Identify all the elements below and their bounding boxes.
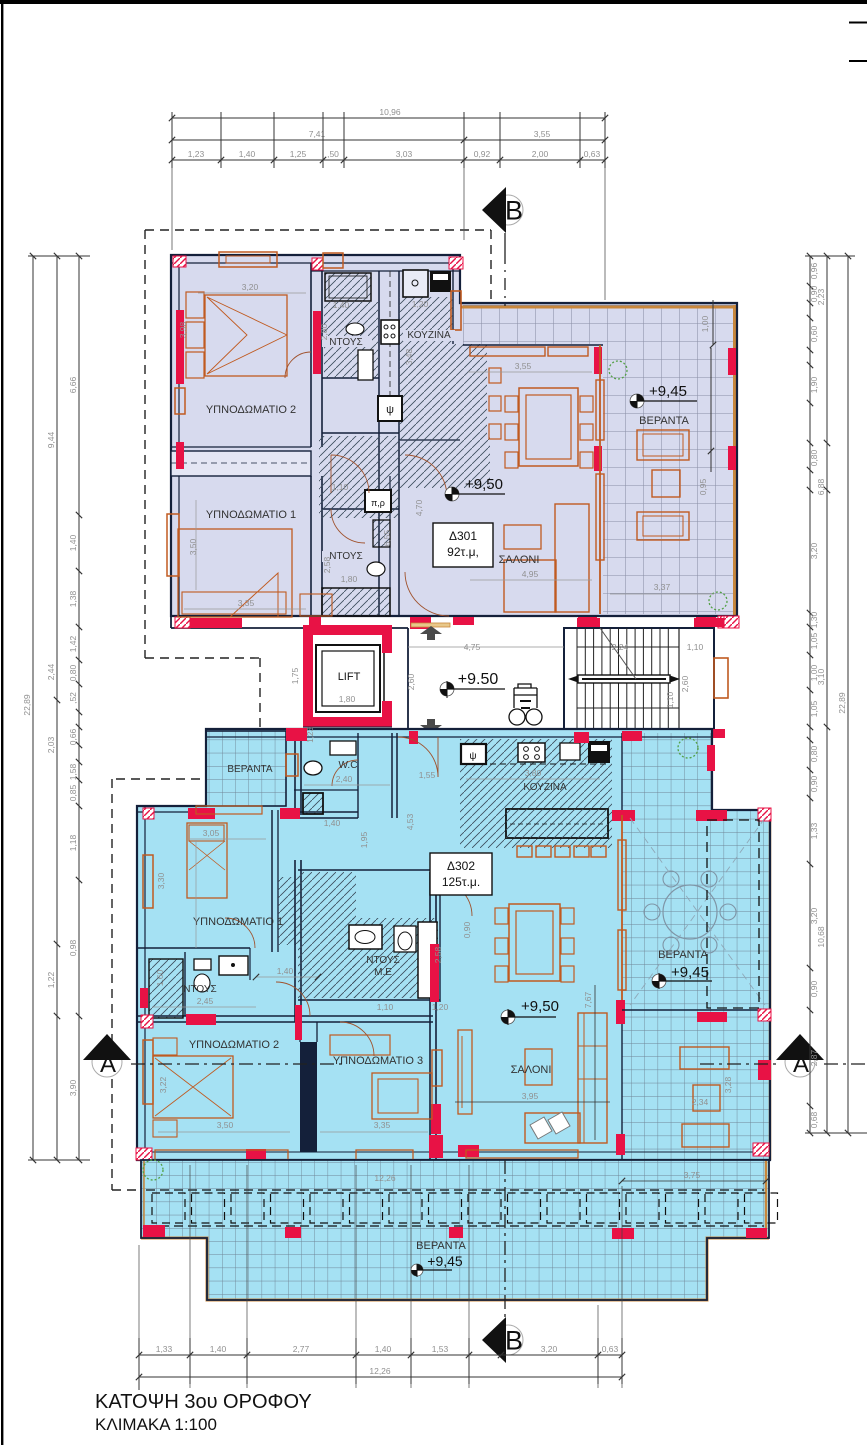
svg-text:0,85: 0,85 (68, 784, 78, 801)
svg-text:0,63: 0,63 (584, 149, 601, 159)
svg-text:1,40: 1,40 (375, 1344, 392, 1354)
svg-text:3,35: 3,35 (238, 598, 255, 608)
svg-text:3,10: 3,10 (816, 668, 826, 685)
svg-text:2,87: 2,87 (809, 1049, 819, 1066)
svg-text:1,05: 1,05 (809, 700, 819, 717)
svg-text:2,45: 2,45 (197, 996, 214, 1006)
svg-text:1,25: 1,25 (290, 149, 307, 159)
svg-text:1,95: 1,95 (359, 831, 369, 848)
svg-text:1,23: 1,23 (306, 727, 315, 743)
svg-text:3,50: 3,50 (188, 538, 198, 555)
svg-text:2,60: 2,60 (680, 675, 690, 692)
svg-text:0,80: 0,80 (68, 664, 78, 681)
svg-text:3,75: 3,75 (684, 1170, 701, 1180)
svg-text:0,60: 0,60 (809, 325, 819, 342)
svg-text:7,67: 7,67 (583, 991, 593, 1008)
svg-text:22,89: 22,89 (22, 694, 32, 716)
svg-text:+9,45: +9,45 (427, 1253, 463, 1269)
svg-text:3,37: 3,37 (654, 582, 671, 592)
svg-text:1,23: 1,23 (188, 149, 205, 159)
svg-text:ΝΤΟΥΣ: ΝΤΟΥΣ (329, 551, 362, 562)
svg-text:,50: ,50 (327, 149, 339, 159)
svg-text:1,75: 1,75 (290, 667, 300, 684)
svg-text:0,90: 0,90 (809, 775, 819, 792)
svg-text:+9,45: +9,45 (671, 964, 709, 981)
svg-text:2,60: 2,60 (406, 673, 416, 690)
svg-text:ΥΠΝΟΔΩΜΑΤΙΟ 1: ΥΠΝΟΔΩΜΑΤΙΟ 1 (193, 916, 283, 928)
svg-text:1,58: 1,58 (68, 763, 78, 780)
svg-text:B: B (505, 1326, 523, 1356)
svg-text:3,20: 3,20 (541, 1344, 558, 1354)
svg-text:10,96: 10,96 (379, 107, 401, 117)
svg-text:3,22: 3,22 (158, 1076, 168, 1093)
svg-text:1,10: 1,10 (687, 642, 704, 652)
svg-text:4,70: 4,70 (414, 499, 424, 516)
svg-text:1,42: 1,42 (68, 635, 78, 652)
svg-text:3,20: 3,20 (242, 282, 259, 292)
svg-text:2,40: 2,40 (336, 774, 353, 784)
svg-text:LIFT: LIFT (338, 671, 361, 683)
svg-text:6,66: 6,66 (68, 376, 78, 393)
svg-text:3,20: 3,20 (809, 907, 819, 924)
svg-text:0,80: 0,80 (809, 449, 819, 466)
svg-text:1,40: 1,40 (210, 1344, 227, 1354)
svg-text:2,03: 2,03 (46, 736, 56, 753)
svg-text:ΣΑΛΟΝΙ: ΣΑΛΟΝΙ (511, 1064, 552, 1076)
svg-text:92τ.μ,: 92τ.μ, (447, 545, 479, 559)
svg-text:ΚΟΥΖΙΝΑ: ΚΟΥΖΙΝΑ (523, 782, 567, 793)
svg-text:3,95: 3,95 (522, 1091, 539, 1101)
svg-text:1,55: 1,55 (419, 770, 436, 780)
svg-text:3,30: 3,30 (156, 872, 166, 889)
svg-text:3,05: 3,05 (203, 828, 220, 838)
svg-text:0,96: 0,96 (809, 262, 819, 279)
svg-text:0,90: 0,90 (809, 980, 819, 997)
svg-text:Μ.Ε: Μ.Ε (374, 967, 392, 978)
svg-text:4,53: 4,53 (405, 813, 415, 830)
svg-text:2,23: 2,23 (816, 288, 826, 305)
svg-text:3,20: 3,20 (809, 542, 819, 559)
svg-text:1,18: 1,18 (68, 834, 78, 851)
svg-text:2,44: 2,44 (46, 663, 56, 680)
svg-text:3,98: 3,98 (178, 321, 188, 338)
svg-text:B: B (505, 196, 523, 226)
svg-text:1,20: 1,20 (412, 299, 429, 309)
svg-text:Δ301: Δ301 (449, 529, 477, 543)
svg-text:ΝΤΟΥΣ: ΝΤΟΥΣ (329, 337, 362, 348)
svg-text:12,26: 12,26 (374, 1173, 396, 1183)
svg-text:ΥΠΝΟΔΩΜΑΤΙΟ 2: ΥΠΝΟΔΩΜΑΤΙΟ 2 (206, 404, 296, 416)
svg-text:125τ.μ.: 125τ.μ. (442, 875, 480, 889)
svg-text:W.C: W.C (339, 760, 358, 771)
svg-text:1,40: 1,40 (68, 534, 78, 551)
svg-text:1,38: 1,38 (68, 590, 78, 607)
svg-text:ΥΠΝΟΔΩΜΑΤΙΟ 3: ΥΠΝΟΔΩΜΑΤΙΟ 3 (333, 1055, 423, 1067)
svg-text:1,10: 1,10 (332, 482, 349, 492)
svg-text:6,55: 6,55 (382, 529, 392, 546)
svg-text:π,ρ: π,ρ (371, 498, 385, 508)
svg-text:0,66: 0,66 (68, 728, 78, 745)
svg-text:1,22: 1,22 (46, 971, 56, 988)
svg-text:1,60: 1,60 (155, 969, 165, 986)
svg-text:ΒΕΡΑΝΤΑ: ΒΕΡΑΝΤΑ (416, 1240, 466, 1252)
svg-text:22,89: 22,89 (837, 692, 847, 714)
svg-text:1,40: 1,40 (239, 149, 256, 159)
svg-text:1,05: 1,05 (809, 632, 819, 649)
svg-text:ψ: ψ (386, 404, 394, 416)
svg-text:3,35: 3,35 (374, 1120, 391, 1130)
svg-text:ΚΟΥΖΙΝΑ: ΚΟΥΖΙΝΑ (407, 330, 451, 341)
svg-text:2,58: 2,58 (322, 556, 332, 573)
svg-text:2,58: 2,58 (433, 946, 443, 963)
svg-text:ΒΕΡΑΝΤΑ: ΒΕΡΑΝΤΑ (639, 415, 689, 427)
svg-text:ΥΠΝΟΔΩΜΑΤΙΟ 1: ΥΠΝΟΔΩΜΑΤΙΟ 1 (206, 509, 296, 521)
svg-text:1,40: 1,40 (324, 818, 341, 828)
svg-text:ΚΑΤΟΨΗ 3ου ΟΡΟΦΟΥ: ΚΑΤΟΨΗ 3ου ΟΡΟΦΟΥ (95, 1391, 312, 1413)
svg-text:+9,50: +9,50 (521, 998, 559, 1015)
svg-text:1,20: 1,20 (432, 1002, 449, 1012)
svg-text:1,40: 1,40 (277, 966, 294, 976)
svg-text:3,50: 3,50 (217, 1120, 234, 1130)
svg-text:1,90: 1,90 (809, 376, 819, 393)
svg-text:1,53: 1,53 (432, 1344, 449, 1354)
svg-text:3,03: 3,03 (396, 149, 413, 159)
svg-text:3,55: 3,55 (534, 129, 551, 139)
svg-text:0,63: 0,63 (602, 1344, 619, 1354)
svg-text:+9.50: +9.50 (458, 671, 499, 688)
svg-text:10,68: 10,68 (816, 926, 826, 948)
svg-text:ΝΤΟΥΣ: ΝΤΟΥΣ (366, 955, 399, 966)
svg-text:0,90: 0,90 (462, 921, 472, 938)
svg-text:0,92: 0,92 (474, 149, 491, 159)
svg-text:ΒΕΡΑΝΤΑ: ΒΕΡΑΝΤΑ (227, 764, 273, 775)
svg-text:3,90: 3,90 (68, 1079, 78, 1096)
svg-text:0,95: 0,95 (698, 478, 708, 495)
svg-text:1,10: 1,10 (377, 1002, 394, 1012)
svg-text:+9,50: +9,50 (465, 476, 503, 493)
svg-text:Δ302: Δ302 (447, 859, 475, 873)
svg-text:2,34: 2,34 (692, 1097, 709, 1107)
svg-text:ΝΤΟΥΣ: ΝΤΟΥΣ (183, 984, 216, 995)
svg-text:2,80: 2,80 (319, 323, 329, 340)
svg-text:3,28: 3,28 (723, 1076, 733, 1093)
svg-text:1,10: 1,10 (665, 691, 675, 708)
svg-text:1,33: 1,33 (156, 1344, 173, 1354)
svg-text:3,80: 3,80 (525, 768, 542, 778)
svg-text:ΚΛΙΜΑΚΑ 1:100: ΚΛΙΜΑΚΑ 1:100 (95, 1415, 217, 1434)
svg-text:4,95: 4,95 (522, 569, 539, 579)
svg-text:2,24: 2,24 (612, 642, 629, 652)
svg-text:1,40: 1,40 (333, 300, 350, 310)
svg-text:9,44: 9,44 (46, 431, 56, 448)
svg-text:1,30: 1,30 (809, 611, 819, 628)
svg-text:0,68: 0,68 (809, 1111, 819, 1128)
svg-text:0,98: 0,98 (68, 939, 78, 956)
svg-text:1,00: 1,00 (700, 315, 710, 332)
svg-text:0,80: 0,80 (809, 745, 819, 762)
svg-text:2,77: 2,77 (293, 1344, 310, 1354)
svg-text:+9,45: +9,45 (649, 383, 687, 400)
svg-text:1,80: 1,80 (339, 694, 356, 704)
svg-text:ΣΑΛΟΝΙ: ΣΑΛΟΝΙ (499, 554, 540, 566)
svg-text:ΥΠΝΟΔΩΜΑΤΙΟ 2: ΥΠΝΟΔΩΜΑΤΙΟ 2 (189, 1039, 279, 1051)
svg-text:3,48: 3,48 (404, 348, 414, 365)
svg-text:ΒΕΡΑΝΤΑ: ΒΕΡΑΝΤΑ (658, 949, 708, 961)
svg-text:3,55: 3,55 (515, 361, 532, 371)
svg-text:2,00: 2,00 (532, 149, 549, 159)
svg-text:12,26: 12,26 (369, 1366, 391, 1376)
svg-text:,52: ,52 (68, 692, 78, 704)
svg-text:6,88: 6,88 (816, 478, 826, 495)
svg-text:1,33: 1,33 (809, 822, 819, 839)
svg-text:ψ: ψ (469, 751, 476, 762)
svg-text:1,80: 1,80 (341, 574, 358, 584)
